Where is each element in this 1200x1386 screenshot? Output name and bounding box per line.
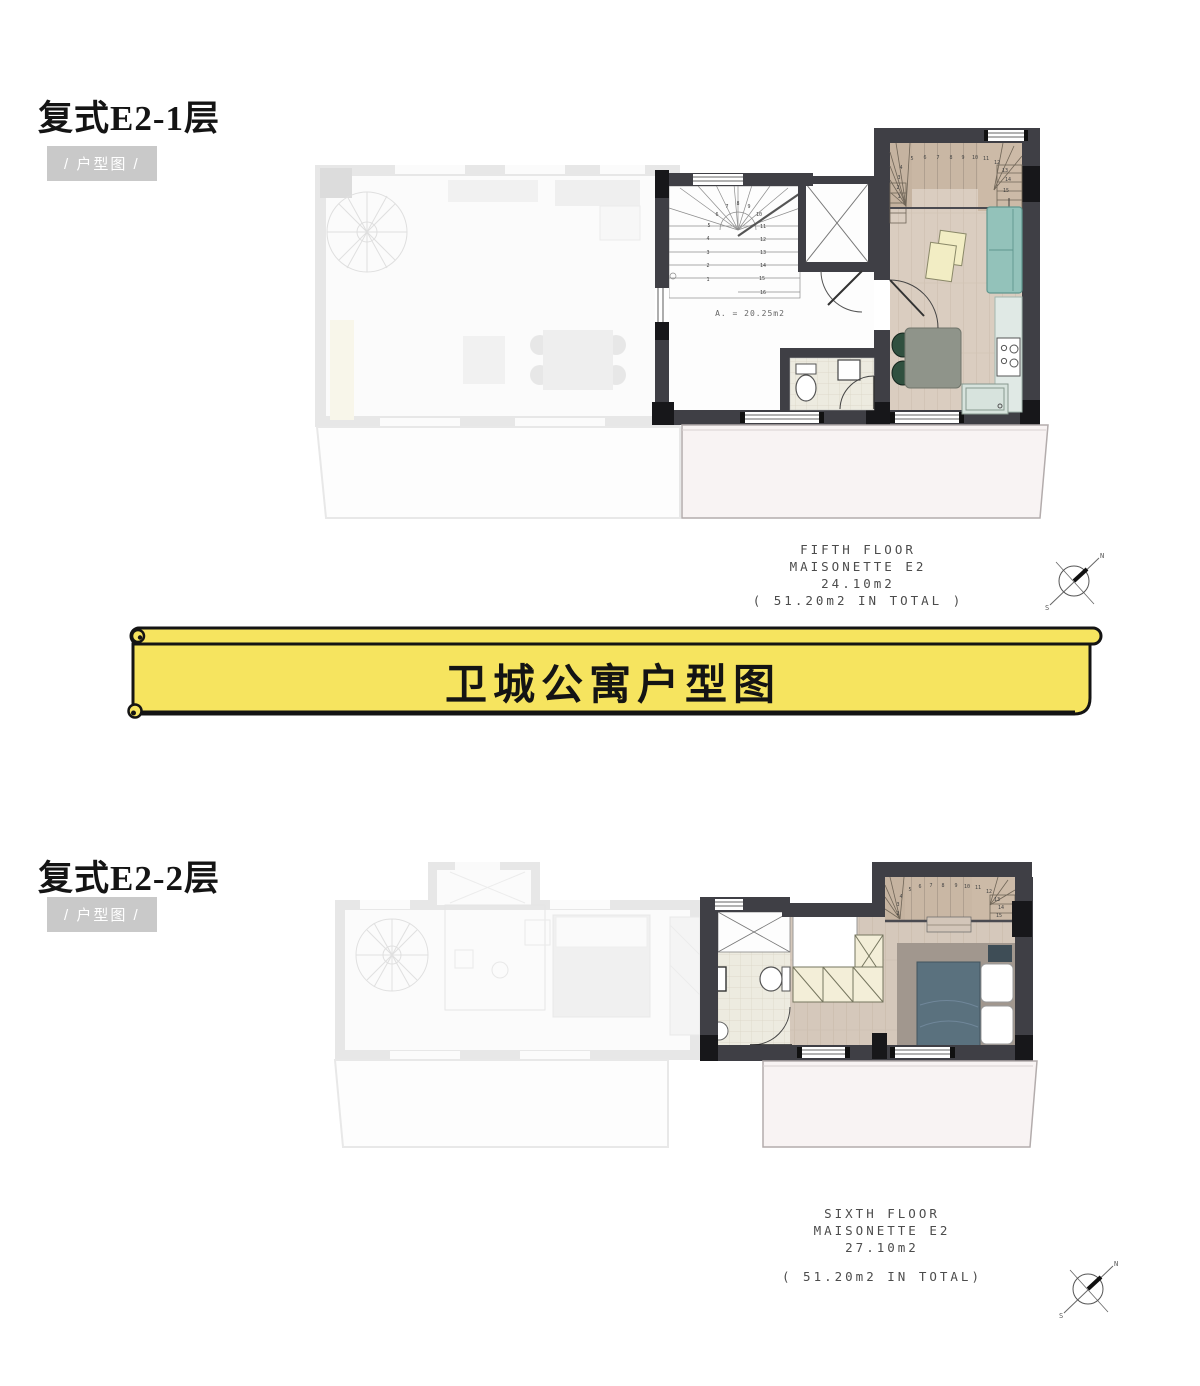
- compass-south-label: S: [1059, 1312, 1063, 1320]
- stair-step-number: 6: [923, 155, 926, 161]
- stair-step-number: 12: [760, 237, 766, 243]
- living-room: 123456789101112131415: [874, 143, 1022, 414]
- stair-step-number: 11: [983, 156, 989, 162]
- toilet-icon: [760, 967, 790, 991]
- compass-icon: N S: [1044, 548, 1108, 612]
- stair-step-number: 8: [736, 201, 739, 207]
- stair-step-number: 6: [918, 884, 921, 890]
- stair-step-number: 15: [1003, 188, 1009, 194]
- caption-line: 24.10m2: [698, 575, 1018, 592]
- plan2-caption: SIXTH FLOOR MAISONETTE E2 27.10m2 ( 51.2…: [722, 1205, 1042, 1285]
- plan1-caption: FIFTH FLOOR MAISONETTE E2 24.10m2 ( 51.2…: [698, 541, 1018, 609]
- banner-curl-top: [132, 630, 144, 642]
- stair-step-number: 4: [899, 894, 902, 900]
- stair-step-number: 13: [1002, 168, 1008, 174]
- stair-step-number: 8: [941, 883, 944, 889]
- caption-line: ( 51.20m2 IN TOTAL): [722, 1268, 1042, 1285]
- stair-step-number: 11: [975, 885, 981, 891]
- ghost-unit: [335, 862, 700, 1147]
- sink-unit: [962, 384, 1008, 414]
- stair-step-number: 13: [760, 250, 766, 256]
- window: [890, 412, 964, 423]
- closet-void: [793, 915, 857, 975]
- stair-step-number: 10: [756, 212, 762, 218]
- stair-step-number: 4: [899, 165, 902, 171]
- stair-step-number: 4: [706, 236, 709, 242]
- stair-step-number: 7: [936, 155, 939, 161]
- stair-step-number: 2: [896, 185, 899, 191]
- section1-heading: 复式E2-1层: [38, 90, 220, 141]
- ghost-terrace: [335, 1060, 668, 1147]
- stair-step-number: 9: [747, 204, 750, 210]
- nightstand: [988, 945, 1012, 962]
- stair-step-number: 13: [994, 897, 1000, 903]
- stove-icon: [997, 338, 1020, 376]
- stair-step-number: 3: [897, 175, 900, 181]
- ghost-dining: [530, 330, 626, 390]
- terrace: [763, 1061, 1037, 1147]
- window: [693, 174, 743, 185]
- section1-badge: / 户型图 /: [47, 146, 157, 181]
- stair-step-number: 7: [725, 204, 728, 210]
- ghost-spiral-stair: [356, 919, 428, 991]
- stair-step-number: 10: [972, 155, 978, 161]
- caption-line: 27.10m2: [722, 1239, 1042, 1256]
- stair-step-number: 3: [896, 902, 899, 908]
- window: [715, 899, 743, 910]
- floor-plan-sixth-floor: 23456789101112131415: [300, 855, 1065, 1155]
- stair-step-number: 15: [759, 276, 765, 282]
- section2-heading: 复式E2-2层: [38, 850, 220, 901]
- caption-line: MAISONETTE E2: [722, 1222, 1042, 1239]
- compass-north-label: N: [1114, 1260, 1118, 1268]
- stair-step-number: 2: [896, 911, 899, 917]
- ghost-unit: [315, 165, 680, 518]
- window: [797, 1047, 850, 1058]
- page: 复式E2-1层 / 户型图 /: [0, 0, 1200, 1386]
- banner-title: 卫城公寓户型图: [118, 651, 1108, 712]
- compass-north-label: N: [1100, 552, 1104, 560]
- stair-step-number: 10: [964, 884, 970, 890]
- floor-plan-fifth-floor: 12345678910111213141516 A. = 20.25m2: [300, 108, 1060, 532]
- bathroom: [706, 912, 792, 1045]
- toilet-icon: [796, 364, 816, 401]
- stair-step-number: 14: [998, 905, 1004, 911]
- terrace: [682, 425, 1048, 518]
- stair-step-number: 9: [954, 883, 957, 889]
- window: [890, 1047, 955, 1058]
- stair-step-number: 11: [760, 224, 766, 230]
- section2-badge: / 户型图 /: [47, 897, 157, 932]
- stairwell-area-label: A. = 20.25m2: [715, 309, 785, 318]
- stair-step-number: 5: [908, 887, 911, 893]
- stair-step-number: 16: [760, 290, 766, 296]
- window: [740, 412, 824, 423]
- bathroom: [790, 358, 874, 410]
- compass-icon: N S: [1058, 1256, 1122, 1320]
- basin-icon: [838, 360, 860, 380]
- stair-step-number: 7: [929, 883, 932, 889]
- sofa: [987, 207, 1022, 293]
- stair-step-number: 2: [706, 263, 709, 269]
- stair-step-number: 12: [986, 889, 992, 895]
- compass-south-label: S: [1045, 604, 1049, 612]
- stair-step-number: 8: [949, 155, 952, 161]
- stair-step-number: 15: [996, 913, 1002, 919]
- stair-step-number: 6: [715, 212, 718, 218]
- window: [655, 288, 669, 322]
- stair-step-number: 14: [1005, 177, 1011, 183]
- stair-step-number: 5: [910, 156, 913, 162]
- stair-step-number: 1: [706, 277, 709, 283]
- stair-step-number: 12: [994, 160, 1000, 166]
- ghost-spiral-stair: [327, 192, 407, 272]
- stair-step-number: 1: [897, 194, 900, 200]
- caption-line: MAISONETTE E2: [698, 558, 1018, 575]
- banner-rod: [131, 628, 1101, 644]
- shower: [718, 912, 790, 952]
- stair-step-number: 3: [706, 250, 709, 256]
- stair-step-number: 5: [707, 223, 710, 229]
- caption-line: SIXTH FLOOR: [722, 1205, 1042, 1222]
- stair-step-number: 14: [760, 263, 766, 269]
- stair-step-number: 9: [961, 155, 964, 161]
- ghost-terrace: [317, 427, 680, 518]
- ghost-wardrobe: [670, 917, 700, 1035]
- ghost-bed: [553, 915, 650, 1017]
- caption-line: FIFTH FLOOR: [698, 541, 1018, 558]
- window: [984, 130, 1028, 141]
- caption-line: ( 51.20m2 IN TOTAL ): [698, 592, 1018, 609]
